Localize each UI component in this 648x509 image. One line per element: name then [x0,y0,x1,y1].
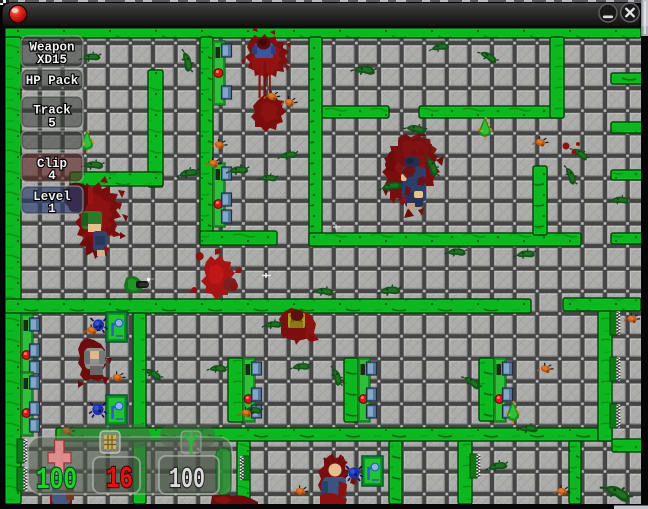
svg-text:5: 5 [48,117,56,131]
svg-text:100: 100 [36,463,77,498]
svg-text:16: 16 [106,462,133,497]
svg-text:Track: Track [33,104,71,118]
svg-text:100: 100 [169,463,205,496]
svg-text:1: 1 [48,202,56,216]
svg-text:4: 4 [48,169,56,183]
svg-text:XD15: XD15 [37,53,67,67]
svg-text:HP Pack: HP Pack [26,74,79,88]
